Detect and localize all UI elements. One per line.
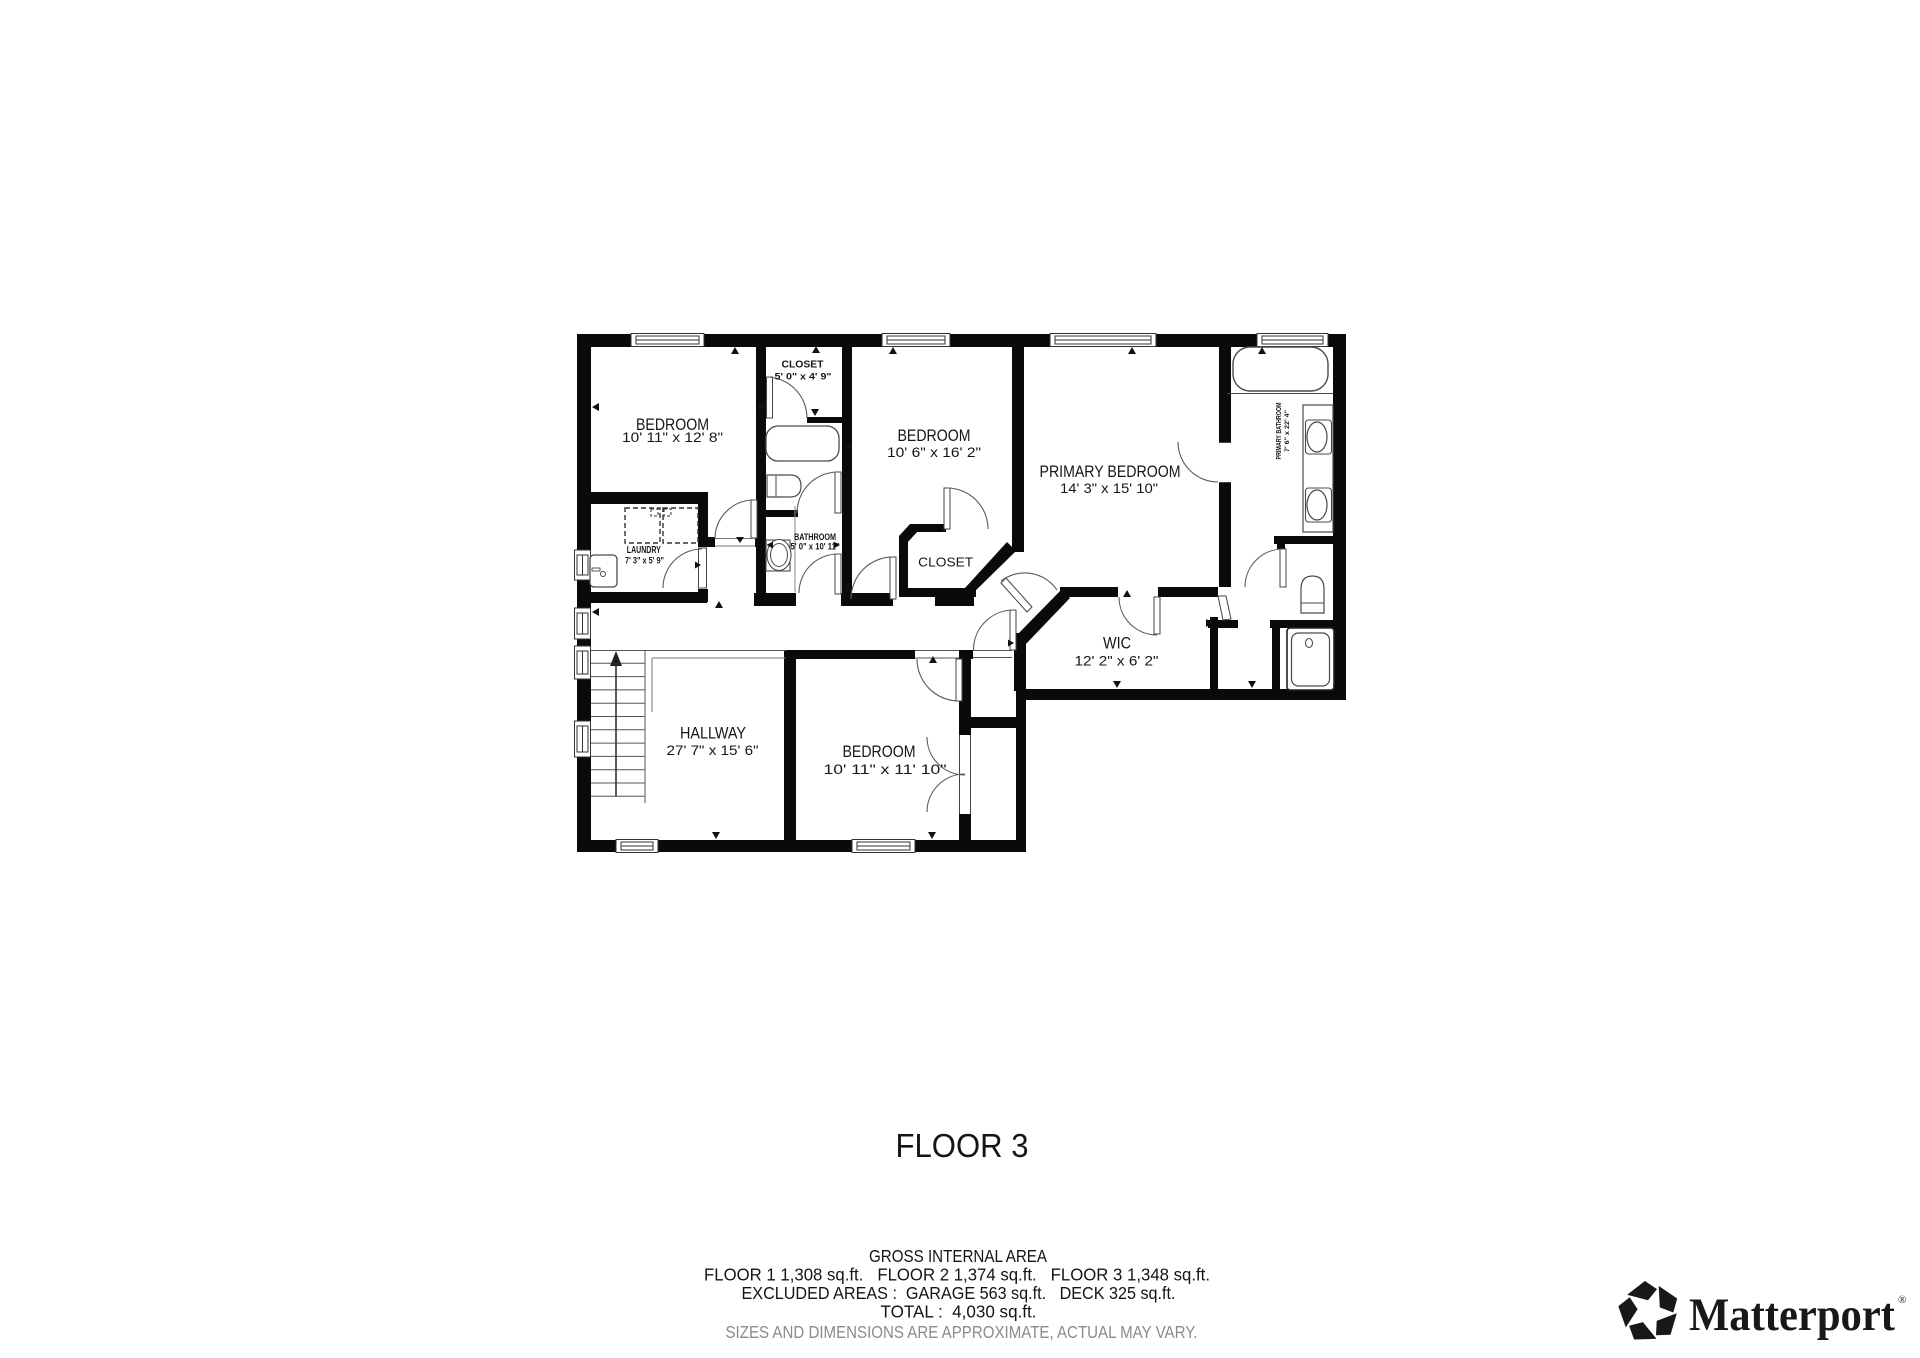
svg-text:5' 0" x 4' 9": 5' 0" x 4' 9" <box>775 372 832 383</box>
svg-text:LAUNDRY: LAUNDRY <box>627 545 661 556</box>
svg-text:®: ® <box>1898 1294 1906 1306</box>
svg-text:CLOSET: CLOSET <box>918 556 973 570</box>
svg-text:10' 11" x 12' 8": 10' 11" x 12' 8" <box>622 430 723 445</box>
svg-text:TOTAL : 4,030 sq.ft.: TOTAL : 4,030 sq.ft. <box>881 1302 1037 1322</box>
svg-text:7' 6" x 22' 4": 7' 6" x 22' 4" <box>1284 410 1291 452</box>
svg-text:10' 6" x 16' 2": 10' 6" x 16' 2" <box>887 445 981 460</box>
svg-text:FLOOR 1 1,308 sq.ft. FLOOR 2: FLOOR 1 1,308 sq.ft. FLOOR 2 1,374 sq.ft… <box>704 1265 1210 1285</box>
svg-text:7' 3" x 5' 9": 7' 3" x 5' 9" <box>625 556 664 566</box>
svg-text:FLOOR 3: FLOOR 3 <box>896 1127 1029 1164</box>
svg-text:5' 0" x 10' 11": 5' 0" x 10' 11" <box>791 542 840 552</box>
svg-text:Matterport: Matterport <box>1689 1289 1895 1341</box>
svg-text:12' 2" x 6' 2": 12' 2" x 6' 2" <box>1075 654 1159 669</box>
svg-text:BEDROOM: BEDROOM <box>898 427 971 445</box>
svg-text:CLOSET: CLOSET <box>782 359 825 371</box>
svg-text:GROSS INTERNAL AREA: GROSS INTERNAL AREA <box>869 1246 1047 1266</box>
svg-text:SIZES AND DIMENSIONS ARE APPRO: SIZES AND DIMENSIONS ARE APPROXIMATE, AC… <box>726 1322 1198 1342</box>
svg-text:27' 7" x 15' 6": 27' 7" x 15' 6" <box>667 743 759 758</box>
svg-text:HALLWAY: HALLWAY <box>680 725 746 743</box>
svg-text:10' 11" x 11' 10": 10' 11" x 11' 10" <box>824 762 947 777</box>
svg-text:14' 3" x 15' 10": 14' 3" x 15' 10" <box>1060 481 1158 496</box>
svg-text:EXCLUDED AREAS : GARAGE 563 s: EXCLUDED AREAS : GARAGE 563 sq.ft. DECK … <box>742 1283 1176 1303</box>
svg-text:WIC: WIC <box>1103 635 1131 653</box>
svg-text:PRIMARY BATHROOM: PRIMARY BATHROOM <box>1274 403 1283 460</box>
svg-text:PRIMARY BEDROOM: PRIMARY BEDROOM <box>1040 463 1181 481</box>
svg-text:BEDROOM: BEDROOM <box>843 743 916 761</box>
